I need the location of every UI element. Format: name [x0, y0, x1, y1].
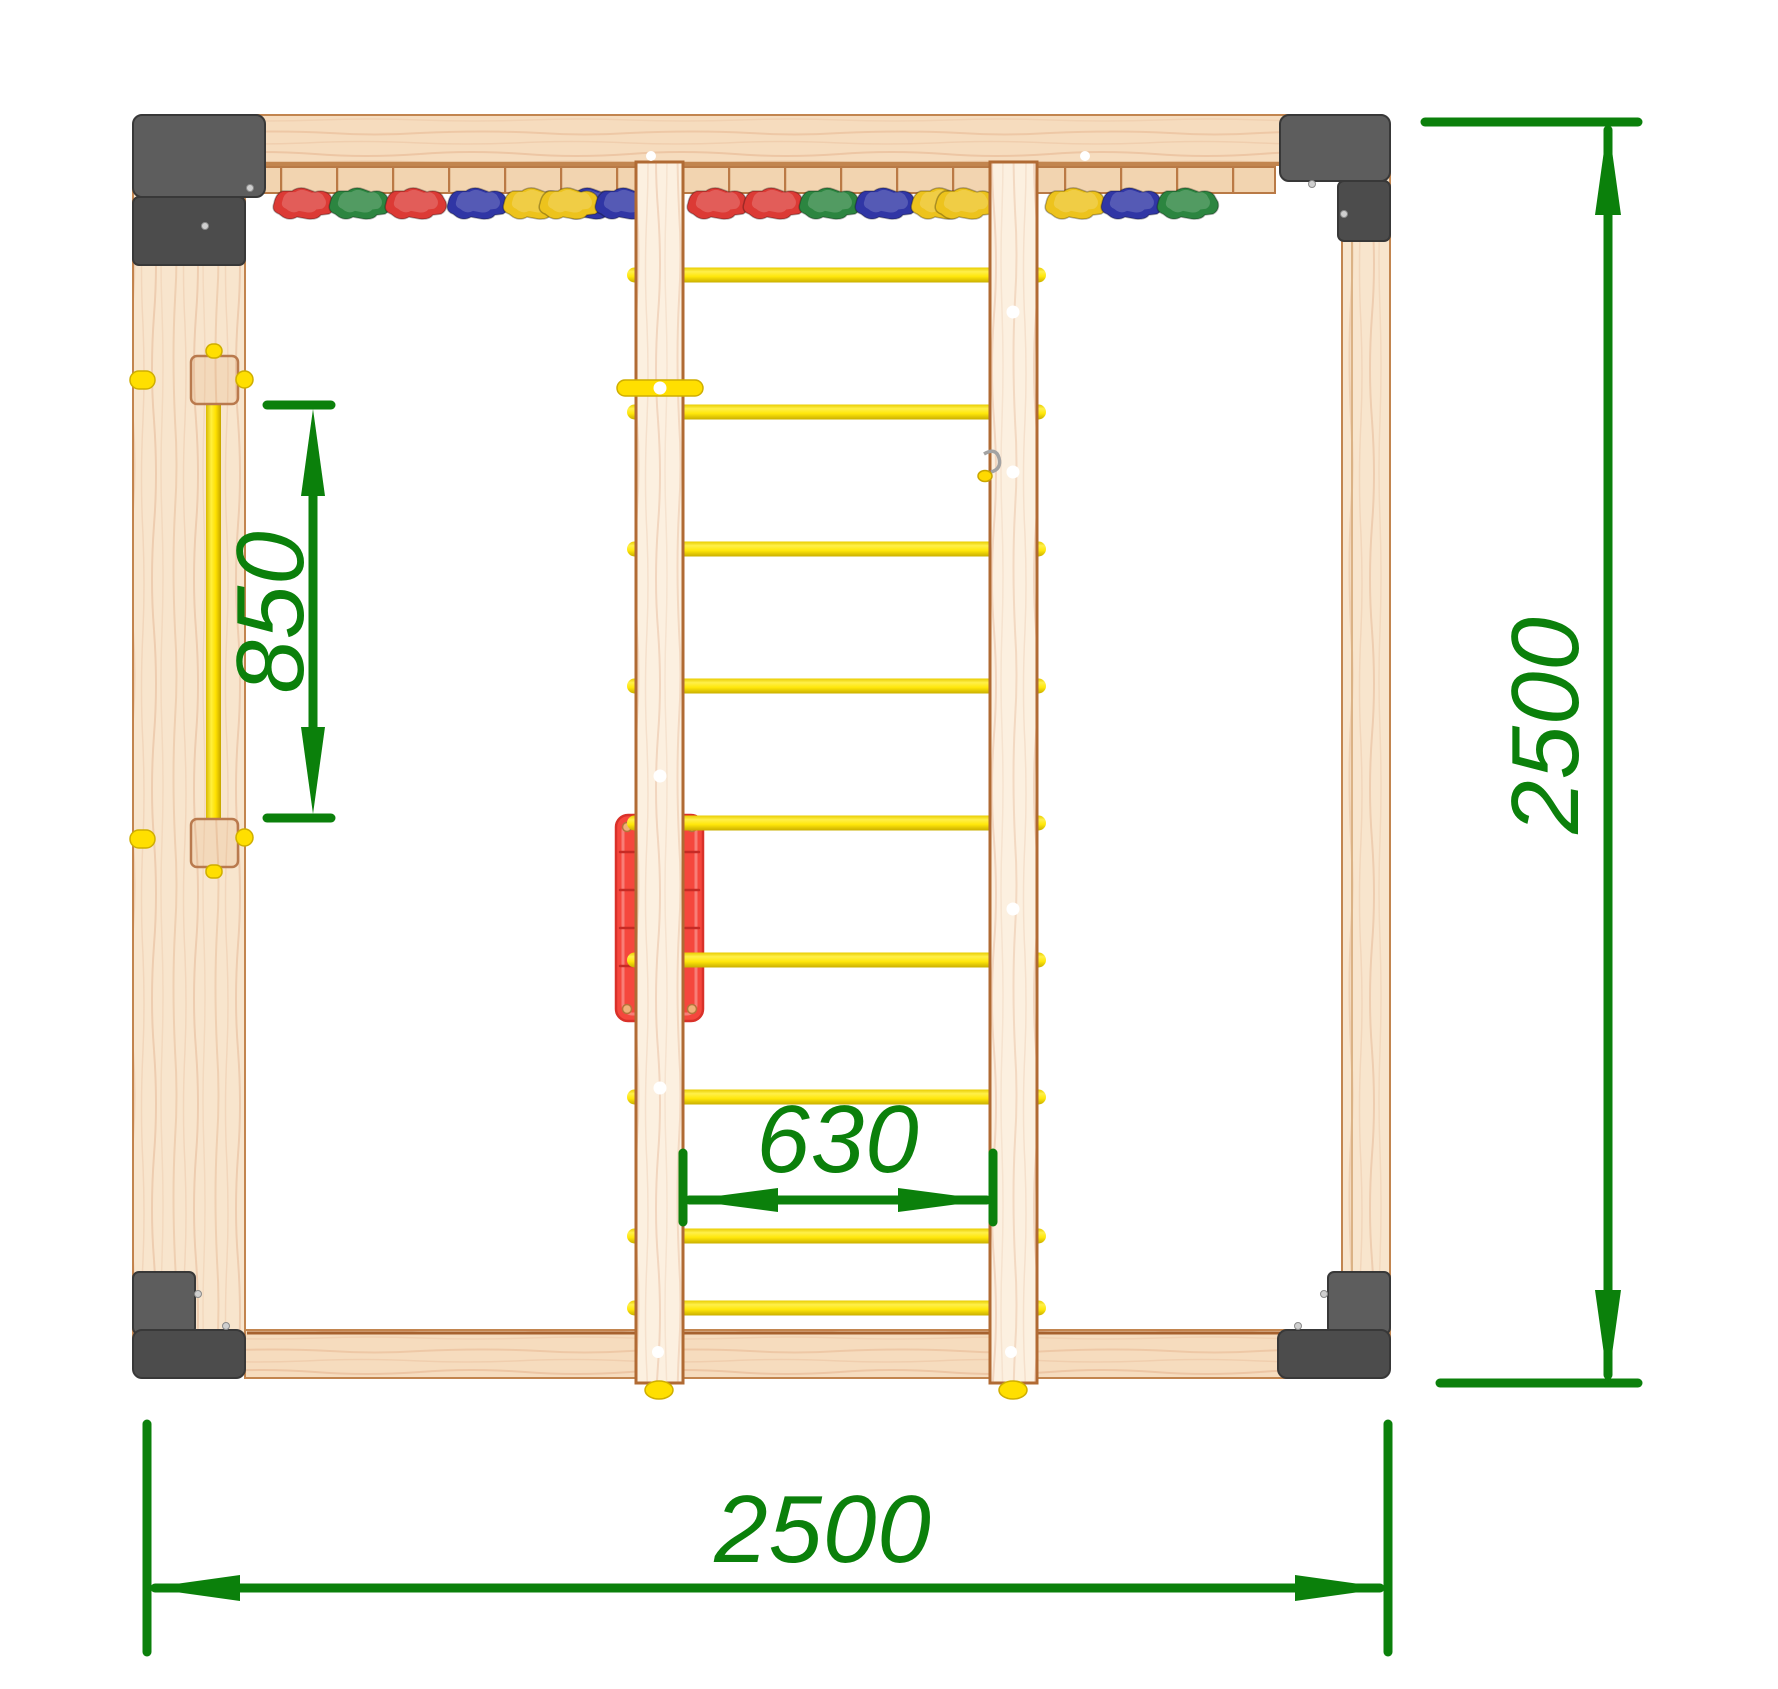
screw-hole [1080, 151, 1090, 161]
dim-depth-arrow-up [1595, 122, 1621, 215]
drawing-svg: 850 630 2500 2500 [0, 0, 1778, 1689]
right-post-grain [1342, 150, 1390, 1340]
dim-width-arrow-right [1295, 1575, 1388, 1601]
left-stringer-foot [645, 1381, 673, 1399]
corner-bracket-bottom-right [1278, 1272, 1390, 1378]
dim-width-arrow-left [147, 1575, 240, 1601]
bracket-screw [247, 185, 254, 192]
ladder-rung [627, 679, 1046, 694]
bracket-screw [1341, 211, 1348, 218]
bracket-screw [1321, 1291, 1328, 1298]
bottom-beam-grain [245, 1330, 1342, 1378]
dimension-2500-depth-label: 2500 [1492, 616, 1599, 835]
ladder-rung [627, 1229, 1046, 1244]
ladder-rung [627, 405, 1046, 420]
bar-peg-bottom [206, 865, 222, 878]
top-beam-grain [245, 115, 1293, 165]
screw-hole [1005, 1346, 1017, 1358]
snap-hook-tip [978, 471, 992, 482]
red-panel-screw [688, 1005, 697, 1014]
dim-850-arrow-up [301, 409, 325, 496]
bar-peg-left-top [130, 371, 155, 389]
screw-hole [652, 1346, 664, 1358]
ladder-rung [627, 268, 1046, 283]
bar-peg-right-bottom [236, 829, 253, 846]
screw-hole [654, 770, 667, 783]
bracket-screw [1309, 181, 1316, 188]
hold-board-planks [250, 167, 1275, 193]
bar-peg-left-bottom [130, 830, 155, 848]
dimension-2500-depth: 2500 [1425, 122, 1638, 1383]
screw-hole [1007, 306, 1020, 319]
technical-drawing-canvas: 850 630 2500 2500 [0, 0, 1778, 1689]
ladder-rung [627, 542, 1046, 557]
bracket-screw [223, 1323, 230, 1330]
ladder-rung [627, 816, 1046, 831]
screw-hole [654, 382, 667, 395]
red-panel-screw [623, 1005, 632, 1014]
ladder-rung [627, 953, 1046, 968]
bar-peg-right-top [236, 371, 253, 388]
bracket-screw [195, 1291, 202, 1298]
bracket-screw [1295, 1323, 1302, 1330]
corner-bracket-top-right [1280, 115, 1390, 241]
bar-holder-block-bottom-grain [191, 819, 238, 867]
screw-hole [654, 1082, 667, 1095]
bar-peg-top [206, 344, 222, 358]
left-post-grain [133, 150, 245, 1340]
dimension-630-label: 630 [756, 1086, 919, 1193]
dimension-630: 630 [683, 1086, 993, 1222]
corner-bracket-top-left [133, 115, 265, 265]
dimension-2500-width-label: 2500 [713, 1476, 932, 1583]
dimension-2500-width: 2500 [147, 1424, 1388, 1652]
screw-hole [1007, 466, 1020, 479]
screw-hole [646, 151, 656, 161]
dim-depth-arrow-down [1595, 1290, 1621, 1383]
dim-850-arrow-down [301, 727, 325, 814]
ladder-rung [627, 1301, 1046, 1316]
bar-holder-block-top-grain [191, 356, 238, 404]
screw-hole [1007, 903, 1020, 916]
bracket-screw [202, 223, 209, 230]
right-stringer-foot [999, 1381, 1027, 1399]
dimension-850-label: 850 [217, 530, 324, 693]
